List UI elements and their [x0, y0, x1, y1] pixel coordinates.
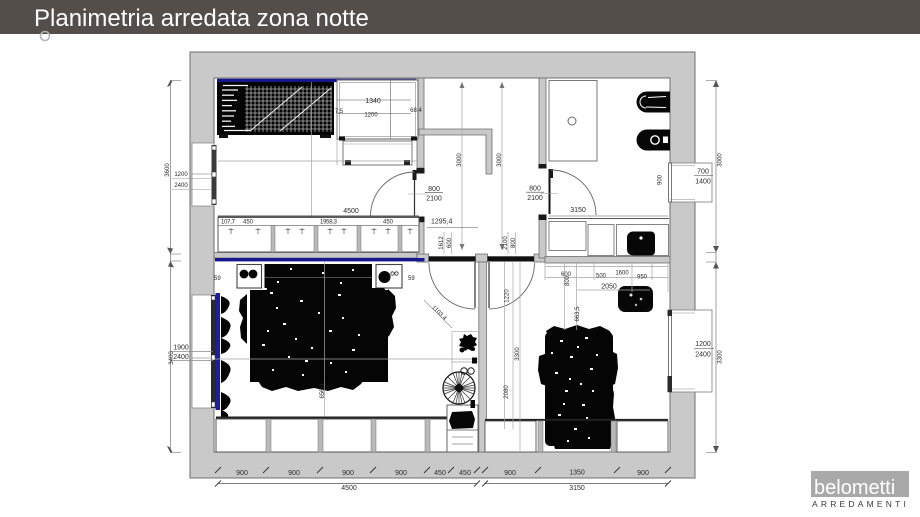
svg-text:2100: 2100 — [503, 236, 509, 250]
svg-text:1200: 1200 — [695, 341, 711, 348]
svg-text:2100: 2100 — [426, 196, 442, 203]
svg-text:656,3: 656,3 — [320, 383, 326, 399]
svg-text:900: 900 — [395, 470, 407, 477]
svg-text:800: 800 — [529, 186, 541, 193]
svg-text:450: 450 — [243, 220, 254, 226]
svg-text:ARREDAMENTI: ARREDAMENTI — [812, 499, 909, 509]
svg-text:Planimetria arredata zona nott: Planimetria arredata zona notte — [34, 5, 369, 32]
svg-text:belometti: belometti — [814, 477, 895, 499]
svg-text:3000: 3000 — [497, 153, 503, 167]
svg-text:2400: 2400 — [695, 352, 711, 359]
svg-text:7,5: 7,5 — [335, 109, 344, 115]
svg-text:3150: 3150 — [570, 207, 586, 214]
svg-text:3600: 3600 — [165, 163, 171, 177]
svg-text:3300: 3300 — [515, 347, 521, 361]
svg-text:3300: 3300 — [718, 350, 724, 364]
svg-text:1200: 1200 — [364, 113, 378, 119]
svg-text:2080: 2080 — [504, 385, 510, 399]
svg-text:450: 450 — [434, 470, 446, 477]
svg-text:1200: 1200 — [174, 172, 188, 178]
svg-text:4500: 4500 — [341, 485, 357, 492]
svg-text:1612: 1612 — [439, 236, 445, 250]
svg-text:1900: 1900 — [173, 345, 189, 352]
svg-text:600: 600 — [447, 237, 453, 248]
svg-text:663,5: 663,5 — [575, 306, 581, 322]
svg-text:900: 900 — [288, 470, 300, 477]
svg-text:1958,3: 1958,3 — [320, 220, 338, 226]
svg-text:900: 900 — [342, 470, 354, 477]
svg-text:3400: 3400 — [169, 351, 175, 365]
svg-text:1220: 1220 — [505, 289, 511, 303]
svg-text:800: 800 — [428, 186, 440, 193]
svg-text:900: 900 — [658, 174, 664, 185]
svg-text:450: 450 — [459, 470, 471, 477]
svg-text:450: 450 — [383, 220, 394, 226]
svg-text:2100: 2100 — [527, 195, 543, 202]
svg-text:950: 950 — [637, 275, 648, 281]
svg-text:107,7: 107,7 — [221, 220, 236, 226]
svg-text:3000: 3000 — [718, 153, 724, 167]
svg-text:68,4: 68,4 — [410, 108, 422, 114]
svg-text:4500: 4500 — [343, 208, 359, 215]
svg-text:700: 700 — [697, 169, 709, 176]
svg-text:3000: 3000 — [457, 153, 463, 167]
svg-text:900: 900 — [637, 470, 649, 477]
svg-text:1295,4: 1295,4 — [431, 219, 453, 226]
svg-text:1600: 1600 — [615, 271, 629, 277]
svg-text:2400: 2400 — [173, 354, 189, 361]
svg-text:1400: 1400 — [695, 179, 711, 186]
svg-text:1350: 1350 — [569, 470, 585, 477]
svg-text:800: 800 — [565, 275, 571, 286]
svg-text:900: 900 — [236, 470, 248, 477]
svg-text:900: 900 — [504, 470, 516, 477]
svg-text:59: 59 — [408, 276, 415, 282]
svg-text:2050: 2050 — [601, 284, 617, 291]
svg-text:3150: 3150 — [569, 485, 585, 492]
svg-text:59: 59 — [214, 276, 221, 282]
svg-text:800: 800 — [511, 237, 517, 248]
svg-text:1340: 1340 — [365, 98, 381, 105]
svg-text:500: 500 — [596, 274, 607, 280]
svg-text:2400: 2400 — [174, 183, 188, 189]
